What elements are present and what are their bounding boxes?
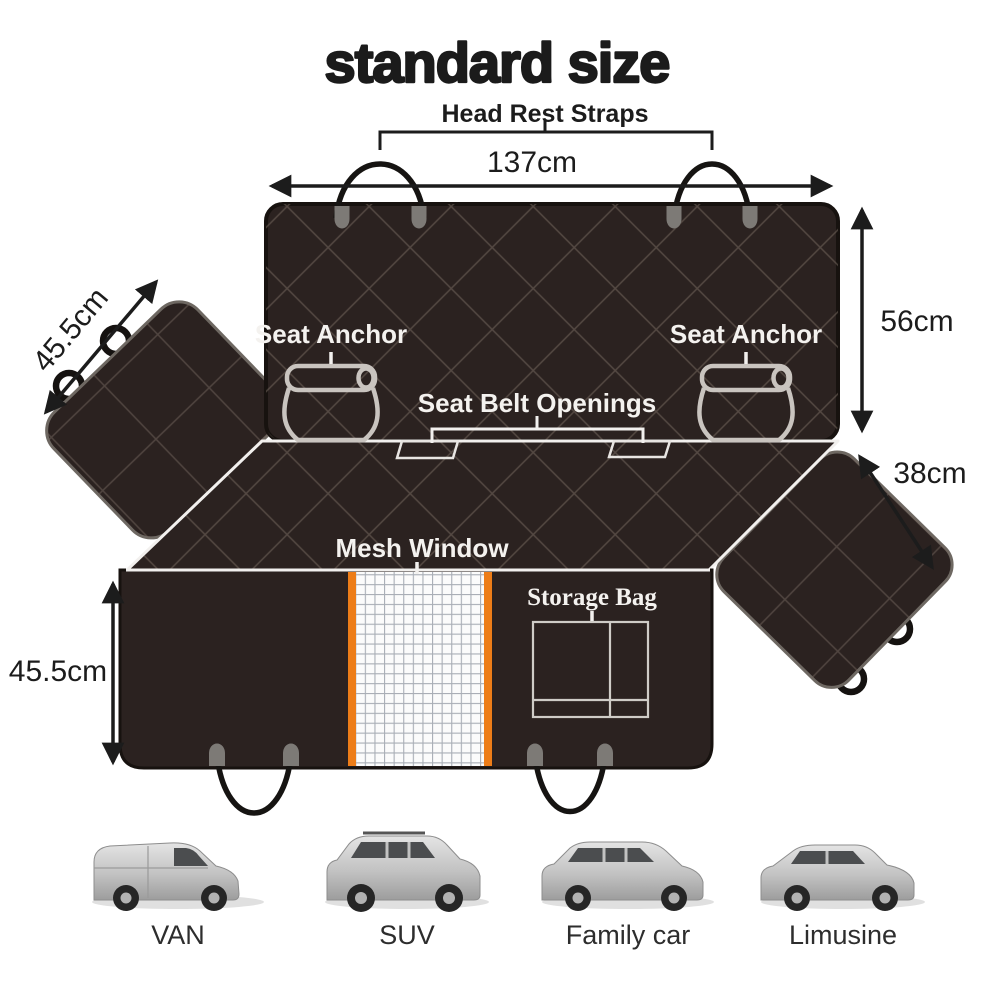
strap-tab <box>209 744 225 767</box>
left-flap-width-value: 45.5cm <box>26 282 115 379</box>
mesh-window-label: Mesh Window <box>335 533 509 563</box>
right-flap-width-value: 38cm <box>893 457 966 490</box>
vehicle-suv <box>325 833 489 912</box>
strap-tab <box>597 744 613 767</box>
strap-tab <box>527 744 543 767</box>
backrest-height-value: 56cm <box>880 305 953 338</box>
seat-belt-openings-label: Seat Belt Openings <box>418 388 656 418</box>
vehicle-van <box>92 843 264 911</box>
vehicle-row: VAN SUV Family car Limusine <box>92 833 925 950</box>
strap-tab <box>412 206 427 229</box>
van-label: VAN <box>151 920 205 950</box>
diagram-canvas: Seat Anchor Seat Anchor Seat Belt Openin… <box>0 0 1000 1000</box>
mesh-window <box>348 572 492 766</box>
strap-tab <box>743 206 758 229</box>
vehicle-limusine <box>761 845 925 911</box>
mesh-trim-left <box>348 572 356 766</box>
suv-label: SUV <box>379 920 435 950</box>
limusine-label: Limusine <box>789 920 897 950</box>
seat-anchor-left-label: Seat Anchor <box>255 319 407 349</box>
vehicle-family-car <box>542 842 714 911</box>
strap-tab <box>335 206 350 229</box>
seat-cover-size-diagram: Seat Anchor Seat Anchor Seat Belt Openin… <box>0 0 1000 1000</box>
total-width-value: 137cm <box>487 146 577 179</box>
strap-tab <box>283 744 299 767</box>
storage-bag-label: Storage Bag <box>527 584 657 611</box>
page-title: standard size <box>325 31 670 94</box>
mesh-trim-right <box>484 572 492 766</box>
mesh-grid <box>348 572 492 766</box>
strap-tab <box>667 206 682 229</box>
seat-depth-value: 45.5cm <box>9 655 107 688</box>
seat-anchor-right-label: Seat Anchor <box>670 319 822 349</box>
suv-windows <box>351 842 435 858</box>
head-rest-straps-label: Head Rest Straps <box>441 100 648 128</box>
family-car-windows <box>568 848 654 862</box>
family-car-label: Family car <box>566 920 691 950</box>
